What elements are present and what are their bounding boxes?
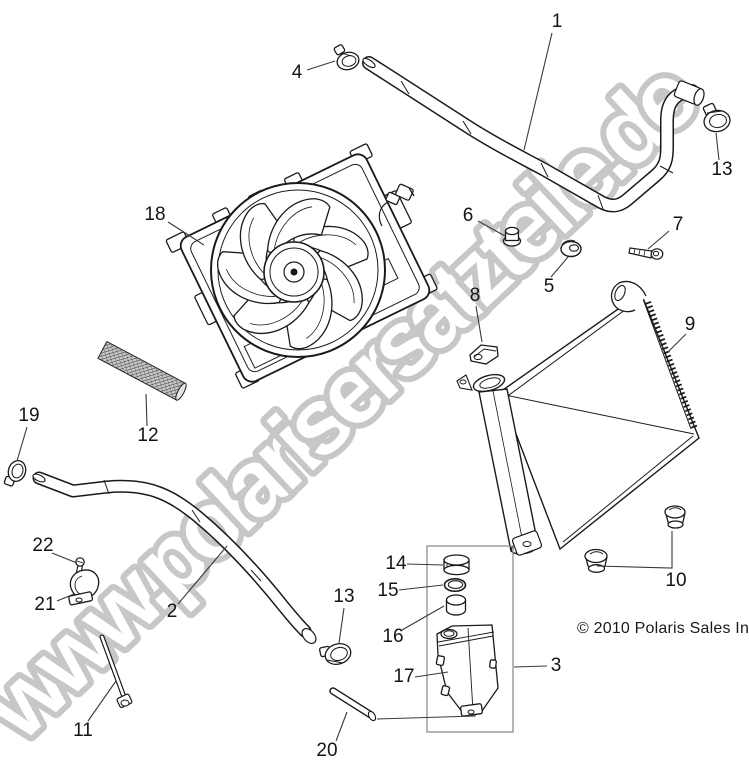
callout-19: 19 — [18, 405, 39, 427]
filler-neck-bushing — [447, 595, 466, 615]
coolant-bottle — [436, 625, 498, 716]
callout-1: 1 — [552, 11, 563, 33]
callout-2: 2 — [167, 601, 178, 623]
callout-10: 10 — [665, 570, 686, 592]
seal-strip — [98, 342, 188, 402]
callout-17: 17 — [393, 666, 414, 688]
callout-5: 5 — [544, 276, 555, 298]
callout-9: 9 — [685, 314, 696, 336]
callout-16: 16 — [382, 626, 403, 648]
callout-8: 8 — [470, 285, 481, 307]
callout-20: 20 — [316, 740, 337, 762]
callout-6: 6 — [463, 205, 474, 227]
overflow-tube — [333, 691, 377, 722]
bottle-cap — [444, 555, 469, 575]
hose-clamp-4 — [334, 44, 361, 72]
hose-clamp-19 — [4, 458, 28, 486]
callout-15: 15 — [377, 580, 398, 602]
callout-3: 3 — [551, 655, 562, 677]
mount-bracket — [470, 345, 498, 364]
callout-7: 7 — [673, 214, 684, 236]
parts-diagram: www.polarisersatzteile.de — [0, 0, 749, 769]
seal-ring — [445, 579, 466, 591]
callout-21: 21 — [34, 594, 55, 616]
hose-clamp-13-lower — [319, 640, 353, 667]
callout-4: 4 — [292, 62, 303, 84]
copyright-text: © 2010 Polaris Sales Inc. — [577, 620, 749, 638]
flange-nut — [504, 227, 521, 246]
callout-12: 12 — [137, 425, 158, 447]
bolt — [629, 248, 663, 259]
callout-11: 11 — [73, 720, 93, 742]
callout-18: 18 — [144, 204, 165, 226]
hose-clamp-13-upper — [702, 103, 731, 134]
callout-13: 13 — [333, 586, 354, 608]
callout-14: 14 — [385, 553, 406, 575]
diagram-canvas: www.polarisersatzteile.de — [0, 0, 749, 769]
callout-13: 13 — [711, 159, 732, 181]
callout-22: 22 — [32, 535, 53, 557]
